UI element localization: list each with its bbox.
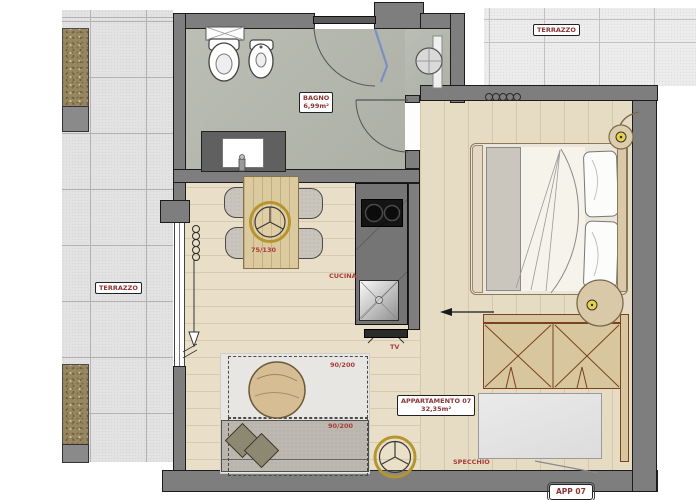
wardrobe-body (483, 323, 623, 389)
mirror-note: SPECCHIO (453, 458, 490, 466)
gravel-strip-top (62, 28, 89, 108)
dining-table (243, 176, 299, 269)
bed-footboard (472, 145, 483, 293)
sofabed-size-note-top: 90/200 (330, 361, 355, 369)
entry-door-leaf (313, 16, 376, 24)
dining-table-size-note: 75/130 (251, 246, 276, 254)
tv-unit (364, 329, 408, 338)
terrace-top-floor (484, 8, 696, 86)
bed-headboard (617, 146, 627, 292)
bed-pillow-1 (583, 150, 619, 217)
wall-bedroom-top (420, 85, 658, 101)
terrace-top-label: TERRAZZO (533, 24, 580, 36)
apartment-tag-text: APP 07 (556, 487, 586, 496)
wardrobe-top-track (483, 314, 623, 323)
wall-right (632, 85, 657, 492)
apartment-name: APPARTAMENTO 07 (401, 397, 471, 405)
terrace-left-label: TERRAZZO (95, 282, 142, 294)
wall-kitchen-side (408, 183, 420, 330)
wall-left-upper (173, 13, 186, 223)
terrace-left-text: TERRAZZO (99, 284, 138, 292)
wall-bath-divider-top (405, 95, 420, 103)
kitchen-sink (359, 280, 399, 321)
kitchen-note: CUCINA (329, 272, 357, 280)
bed-sheet (521, 147, 585, 291)
bed-blanket (486, 147, 521, 291)
bathroom-area: 6,99m² (303, 102, 329, 110)
wardrobe-side-panel (620, 314, 629, 462)
wall-left-lower (173, 366, 186, 478)
wall-top-left (173, 13, 315, 29)
bathroom-door-opening (405, 103, 420, 150)
wall-left-pier (160, 200, 190, 223)
bathroom-label: BAGNO 6,99m² (299, 92, 333, 113)
terrace-top-text: TERRAZZO (537, 26, 576, 34)
washbasin (222, 138, 264, 168)
floor-mirror (478, 393, 602, 459)
gravel-strip-bottom (62, 364, 89, 446)
dining-chair-3 (295, 188, 323, 219)
floor-plan: BAGNO 6,99m² TERRAZZO TERRAZZO APPARTAME… (0, 0, 700, 500)
wall-stub-left-top (62, 106, 89, 132)
bathroom-name: BAGNO (303, 94, 329, 102)
wall-top-door-right (374, 2, 424, 29)
bed-pillow-2 (583, 220, 619, 289)
apartment-tag-label: APP 07 (549, 484, 593, 500)
apartment-area: 32,35m² (401, 405, 471, 413)
wall-bath-divider-bottom (405, 150, 420, 169)
stove (361, 199, 403, 227)
wall-stub-left-bottom (62, 444, 89, 463)
living-window (174, 223, 185, 366)
dining-chair-4 (295, 228, 323, 259)
sofabed-size-note-bottom: 90/200 (328, 422, 353, 430)
apartment-label: APPARTAMENTO 07 32,35m² (397, 395, 475, 416)
tv-note: TV (390, 343, 399, 351)
